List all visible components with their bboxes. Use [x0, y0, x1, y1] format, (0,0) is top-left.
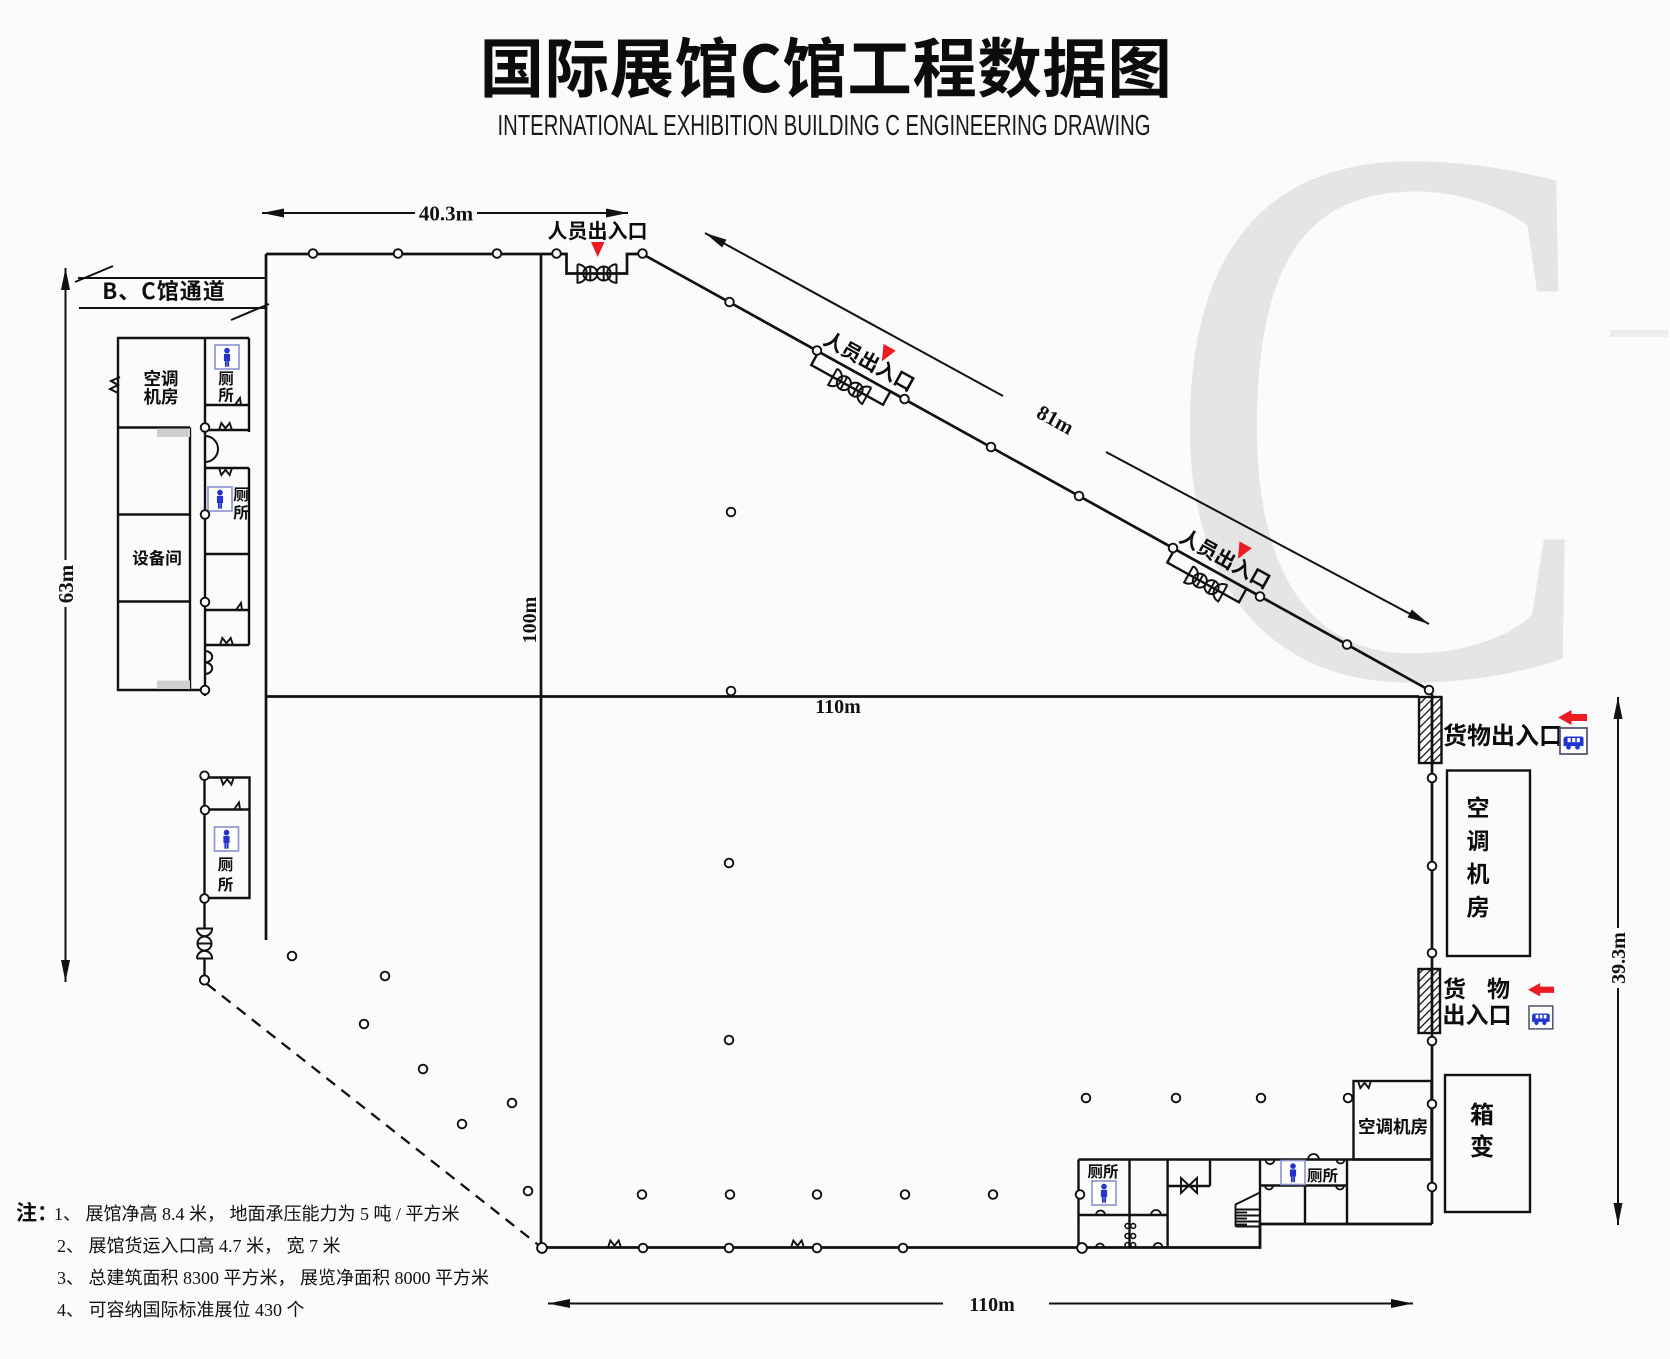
svg-text:房: 房	[1467, 888, 1490, 922]
svg-text:空: 空	[1467, 789, 1490, 823]
svg-text:39.3m: 39.3m	[1608, 932, 1630, 984]
svg-text:货物出入口: 货物出入口	[1443, 716, 1563, 751]
svg-text:机: 机	[1467, 855, 1490, 889]
svg-text:4、 可容纳国际标准展位 430 个: 4、 可容纳国际标准展位 430 个	[57, 1296, 305, 1322]
svg-text:40.3m: 40.3m	[419, 202, 474, 226]
svg-text:63m: 63m	[54, 564, 78, 603]
svg-text:3、 总建筑面积 8300 平方米， 展览净面积 8000: 3、 总建筑面积 8300 平方米， 展览净面积 8000 平方米	[57, 1264, 489, 1290]
svg-text:110m: 110m	[815, 696, 861, 718]
svg-text:厕: 厕	[218, 853, 234, 875]
svg-text:110m: 110m	[969, 1294, 1015, 1316]
svg-text:机房: 机房	[144, 384, 179, 409]
svg-text:所: 所	[218, 384, 234, 406]
svg-text:出入口: 出入口	[1443, 996, 1512, 1030]
svg-text:所: 所	[233, 501, 249, 523]
svg-text:所: 所	[218, 873, 234, 895]
svg-text:注：: 注：	[16, 1197, 58, 1227]
svg-text:B、C馆通道: B、C馆通道	[102, 274, 225, 306]
svg-text:100m: 100m	[519, 596, 541, 643]
svg-text:调: 调	[1467, 822, 1490, 856]
svg-text:1、 展馆净高 8.4 米， 地面承压能力为 5 吨 / 平: 1、 展馆净高 8.4 米， 地面承压能力为 5 吨 / 平方米	[54, 1200, 460, 1226]
svg-text:空调机房: 空调机房	[1358, 1114, 1428, 1139]
svg-text:厕所: 厕所	[1087, 1160, 1119, 1182]
svg-text:国际展馆C馆工程数据图: 国际展馆C馆工程数据图	[480, 17, 1173, 111]
svg-text:变: 变	[1470, 1127, 1494, 1162]
svg-text:设备间: 设备间	[132, 545, 182, 569]
svg-text:2、 展馆货运入口高 4.7 米， 宽 7 米: 2、 展馆货运入口高 4.7 米， 宽 7 米	[57, 1232, 341, 1258]
svg-text:厕所: 厕所	[1307, 1164, 1339, 1186]
svg-text:箱: 箱	[1470, 1095, 1494, 1130]
svg-text:INTERNATIONAL EXHIBITION BUILD: INTERNATIONAL EXHIBITION BUILDING C ENGI…	[497, 110, 1150, 142]
svg-text:人员出入口: 人员出入口	[548, 215, 648, 244]
svg-text:81m: 81m	[1033, 400, 1079, 440]
